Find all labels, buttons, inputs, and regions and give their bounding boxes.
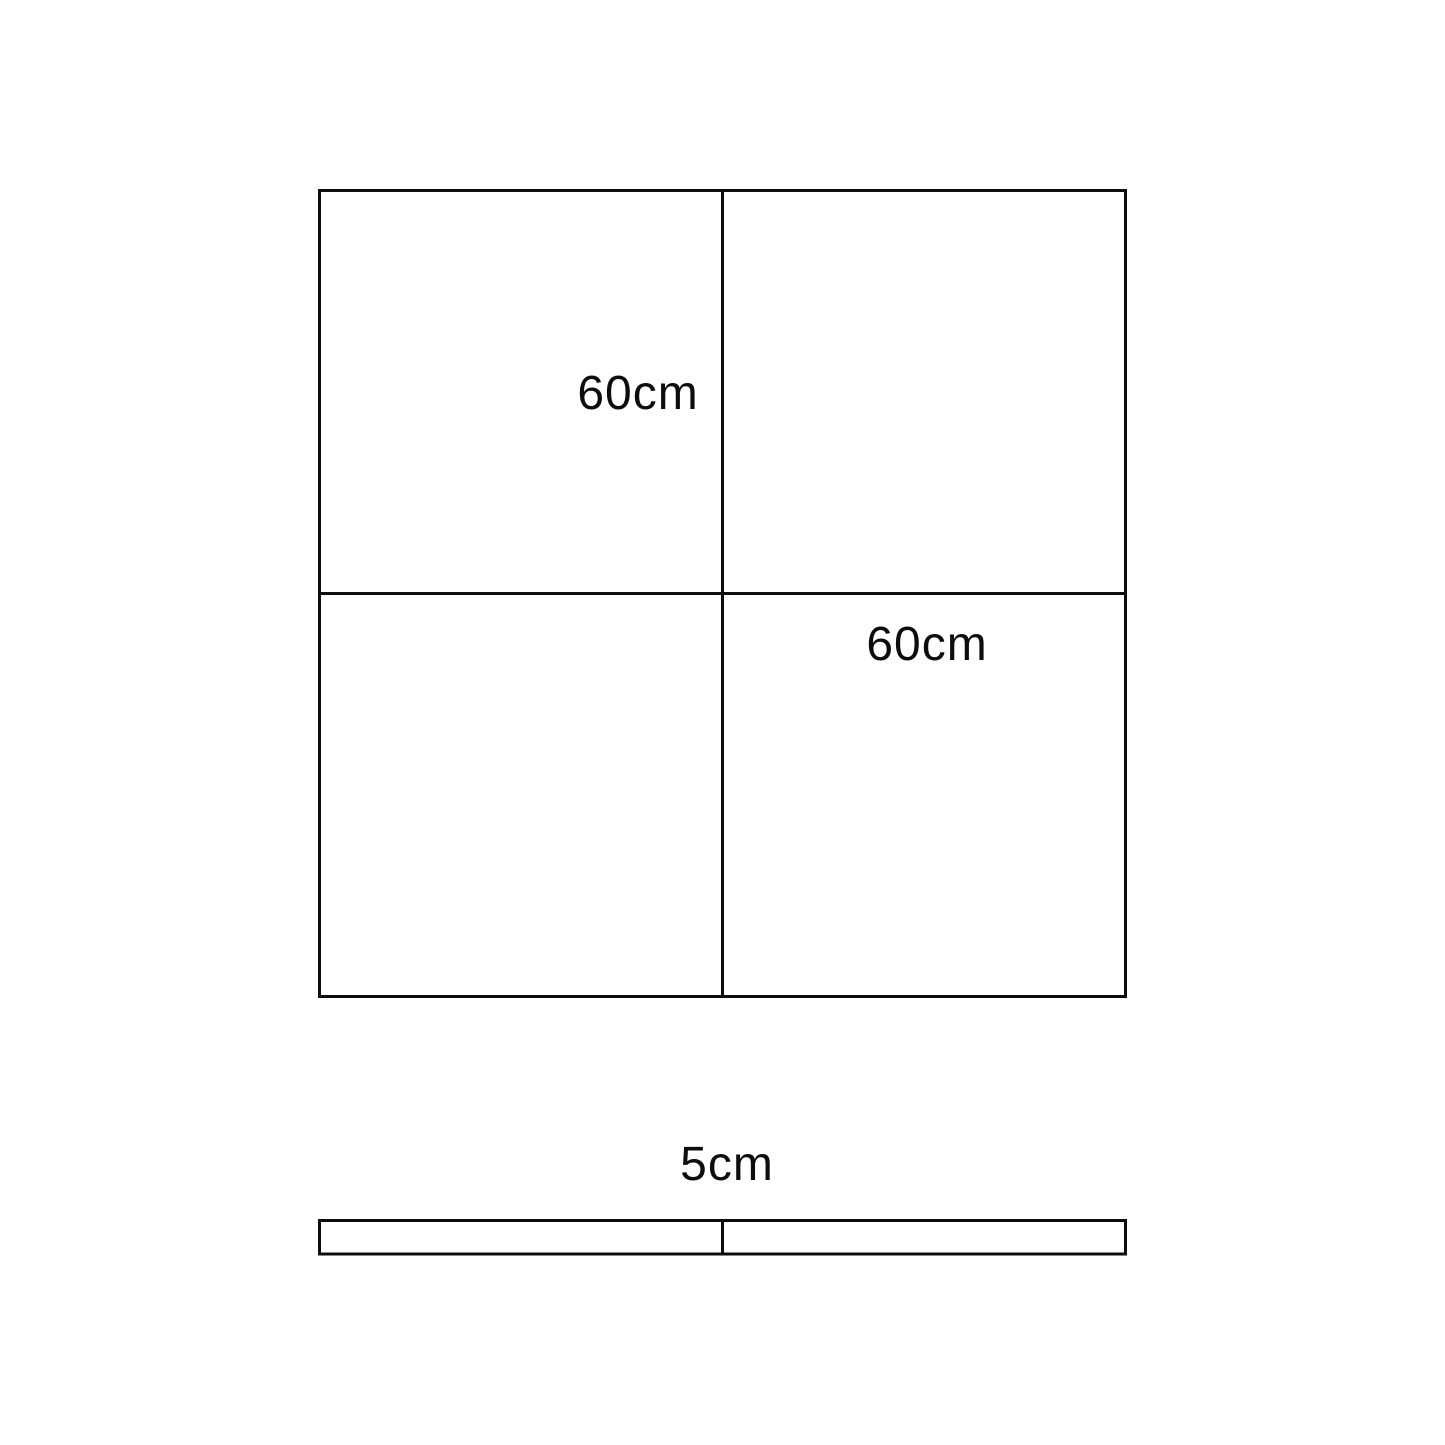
svg-text:60cm: 60cm — [866, 618, 987, 671]
svg-text:5cm: 5cm — [680, 1138, 774, 1191]
svg-text:60cm: 60cm — [577, 367, 698, 420]
